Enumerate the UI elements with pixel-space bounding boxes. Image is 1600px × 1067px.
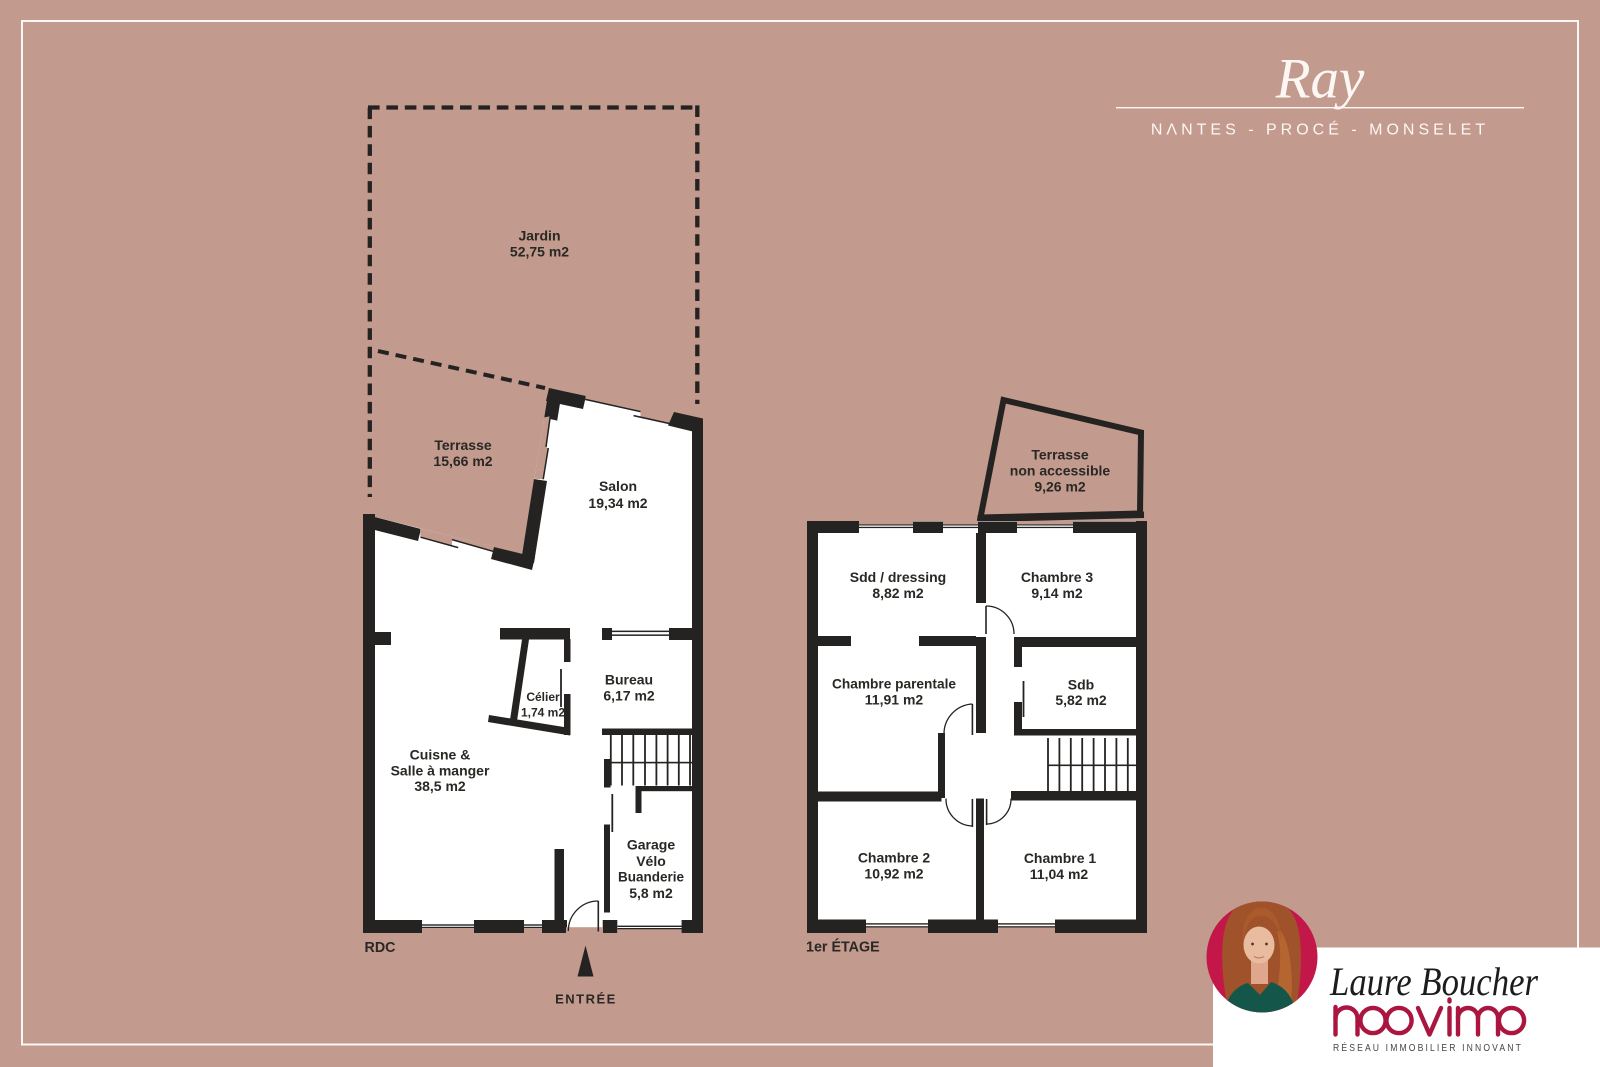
- svg-text:Terrasse: Terrasse: [434, 437, 492, 453]
- svg-text:15,66 m2: 15,66 m2: [433, 453, 492, 469]
- svg-text:10,92 m2: 10,92 m2: [864, 866, 923, 882]
- svg-text:52,75 m2: 52,75 m2: [510, 244, 569, 260]
- svg-text:Sdd / dressing: Sdd / dressing: [850, 569, 946, 585]
- svg-text:NΛNTES - PROCÉ - MONSELET: NΛNTES - PROCÉ - MONSELET: [1151, 120, 1489, 139]
- svg-text:Chambre 2: Chambre 2: [858, 850, 931, 866]
- svg-text:Vélo: Vélo: [636, 853, 666, 869]
- svg-text:38,5 m2: 38,5 m2: [414, 778, 466, 794]
- svg-text:6,17 m2: 6,17 m2: [603, 688, 655, 704]
- svg-text:Salle à manger: Salle à manger: [391, 763, 490, 779]
- svg-text:RDC: RDC: [365, 940, 396, 956]
- svg-text:11,91 m2: 11,91 m2: [865, 692, 924, 708]
- svg-text:Sdb: Sdb: [1068, 677, 1094, 693]
- svg-text:Jardin: Jardin: [518, 228, 560, 244]
- svg-text:5,8 m2: 5,8 m2: [629, 885, 673, 901]
- svg-text:5,82 m2: 5,82 m2: [1055, 692, 1107, 708]
- svg-text:Chambre 1: Chambre 1: [1024, 850, 1097, 866]
- svg-text:9,14 m2: 9,14 m2: [1031, 585, 1083, 601]
- svg-text:Cuisne &: Cuisne &: [410, 747, 471, 763]
- svg-text:Chambre parentale: Chambre parentale: [832, 676, 956, 692]
- svg-text:Célier: Célier: [526, 690, 560, 704]
- svg-text:8,82 m2: 8,82 m2: [872, 585, 924, 601]
- svg-text:RÉSEAU IMMOBILIER INNOVANT: RÉSEAU IMMOBILIER INNOVANT: [1333, 1041, 1523, 1054]
- svg-text:11,04 m2: 11,04 m2: [1030, 866, 1089, 882]
- svg-text:1er ÉTAGE: 1er ÉTAGE: [806, 939, 880, 956]
- svg-text:Ray: Ray: [1275, 48, 1365, 111]
- svg-text:ENTRÉE: ENTRÉE: [555, 992, 617, 1007]
- svg-text:9,26 m2: 9,26 m2: [1034, 479, 1086, 495]
- svg-text:Garage: Garage: [627, 837, 675, 853]
- svg-text:19,34 m2: 19,34 m2: [588, 495, 647, 511]
- svg-text:Salon: Salon: [599, 478, 637, 494]
- svg-text:Buanderie: Buanderie: [618, 869, 684, 885]
- svg-text:Laure Boucher: Laure Boucher: [1329, 959, 1538, 1004]
- svg-text:Bureau: Bureau: [605, 672, 653, 688]
- svg-text:non accessible: non accessible: [1010, 463, 1111, 479]
- svg-text:Chambre 3: Chambre 3: [1021, 569, 1094, 585]
- svg-text:Terrasse: Terrasse: [1031, 447, 1089, 463]
- svg-text:1,74 m2: 1,74 m2: [521, 706, 565, 720]
